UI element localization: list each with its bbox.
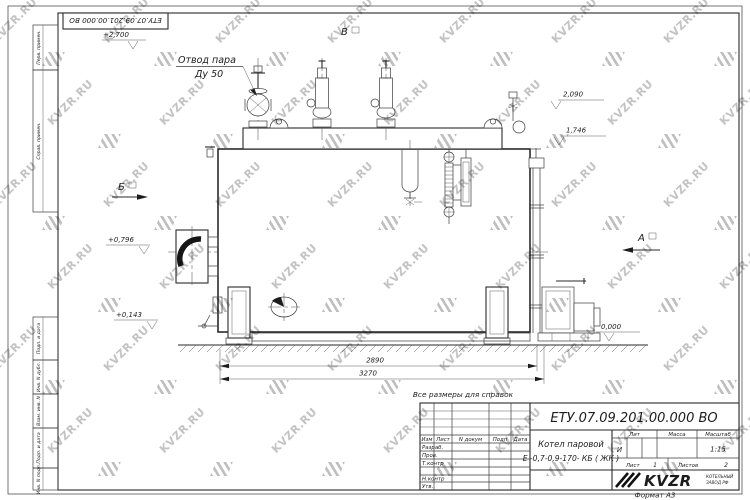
view-label-b: Б (112, 182, 148, 200)
margin-label: Справ. примен. (36, 122, 42, 159)
svg-text:Лист: Лист (435, 437, 451, 443)
svg-text:N докум: N докум (459, 437, 482, 443)
svg-text:3270: 3270 (359, 370, 377, 378)
steam-header-platform (243, 128, 502, 149)
side-valve-top (205, 147, 215, 157)
blower-unit (538, 278, 600, 341)
doc-number: ЕТУ.07.09.201.00.000 ВО (550, 411, 717, 426)
svg-text:Листов: Листов (677, 463, 698, 469)
svg-text:Дата: Дата (513, 437, 528, 443)
boiler-general-view-drawing: Перв. примен. Справ. примен. Подп. и дат… (0, 0, 750, 500)
margin-label: Взам. инв. N (36, 396, 42, 426)
svg-text:А: А (637, 233, 645, 244)
svg-text:2,090: 2,090 (563, 91, 584, 99)
margin-label: Инв. N подл. (36, 464, 42, 494)
ground-line (178, 345, 648, 352)
level-mark-2090: 2,090 (551, 91, 604, 110)
rear-support-leg (484, 287, 510, 344)
svg-text:Н.контр: Н.контр (422, 477, 445, 483)
sheet-value: 1 (653, 462, 657, 469)
svg-text:Утв.: Утв. (422, 484, 433, 490)
company-tagline-1: КОТЕЛЬНЫЙ (706, 474, 734, 479)
margin-label: Инв. N дубл. (36, 362, 42, 392)
margin-box: Перв. примен. (33, 25, 58, 70)
product-name-line2: Е -0,7-0,9-170- КБ ( ЖК ) (523, 454, 620, 463)
level-mark-0000: 0,000 (596, 323, 640, 341)
corner-stamp: ЕТУ.07.09.201.00.000 ВО (63, 13, 168, 29)
drain-valve (198, 315, 218, 328)
company-tagline-2: ЗАВОД РФ (706, 480, 729, 485)
level-mark-2700: +2,700 (102, 31, 146, 49)
svg-text:+0,796: +0,796 (108, 236, 134, 244)
drawing-sheet: Перв. примен. Справ. примен. Подп. и дат… (0, 0, 750, 500)
product-name-line1: Котел паровой (538, 439, 604, 449)
margin-box: Подп. и дата (33, 428, 58, 468)
lit-value: И (617, 446, 623, 454)
corner-stamp-number: ЕТУ.07.09.201.00.000 ВО (69, 16, 162, 25)
svg-text:Масса: Масса (668, 432, 685, 438)
svg-text:Отвод пара: Отвод пара (178, 55, 236, 66)
margin-box: Справ. примен. (33, 70, 58, 212)
burner-unit (176, 147, 222, 328)
svg-text:Б: Б (118, 182, 125, 193)
svg-text:1,746: 1,746 (566, 127, 587, 135)
reference-note: Все размеры для справок (413, 390, 514, 399)
svg-text:Лит: Лит (628, 432, 641, 438)
svg-text:0,000: 0,000 (601, 323, 622, 331)
svg-text:Ду 50: Ду 50 (194, 69, 223, 80)
svg-text:2890: 2890 (366, 357, 384, 365)
svg-text:В: В (341, 27, 348, 38)
format-note: Формат А3 (635, 491, 676, 500)
margin-box: Инв. N дубл. (33, 360, 58, 394)
scale-value: 1:15 (710, 446, 726, 454)
svg-text:Подп: Подп (493, 437, 508, 443)
front-support-leg (226, 287, 252, 344)
boiler-shell (218, 149, 530, 332)
boiler-side-view (168, 58, 600, 344)
svg-text:Лист: Лист (625, 463, 641, 469)
pressure-gauge-siphon (509, 92, 525, 133)
svg-text:Изм: Изм (422, 437, 433, 443)
svg-text:Разраб.: Разраб. (422, 445, 443, 451)
steam-outlet-callout: Отвод пара Ду 50 (176, 55, 257, 96)
margin-box: Взам. инв. N (33, 394, 58, 428)
svg-text:Т.контр: Т.контр (422, 461, 444, 467)
margin-box: Инв. N подл. (33, 464, 58, 494)
company-name: KVZR (644, 472, 692, 490)
view-label-a: А (622, 233, 660, 253)
level-mark-0143: +0,143 (114, 311, 158, 329)
svg-text:Масштаб: Масштаб (705, 432, 731, 438)
title-block: ЕТУ.07.09.201.00.000 ВО Котел паровой Е … (420, 403, 739, 490)
margin-box: Подп. и дата (33, 317, 58, 360)
lifting-lug-front (270, 119, 288, 128)
margin-label: Подп. и дата (36, 323, 42, 354)
view-label-v: В (341, 27, 359, 38)
level-mark-1746: 1,746 (554, 127, 606, 146)
svg-text:+2,700: +2,700 (103, 31, 129, 39)
svg-text:Пров.: Пров. (422, 453, 438, 459)
svg-text:+0,143: +0,143 (116, 311, 142, 319)
left-margin-columns: Перв. примен. Справ. примен. Подп. и дат… (33, 25, 58, 494)
level-mark-0796: +0,796 (106, 236, 150, 254)
margin-label: Перв. примен. (36, 30, 42, 65)
margin-label: Подп. и дата (36, 432, 42, 463)
sheets-value: 2 (724, 462, 728, 469)
lifting-lug-rear (484, 119, 502, 128)
